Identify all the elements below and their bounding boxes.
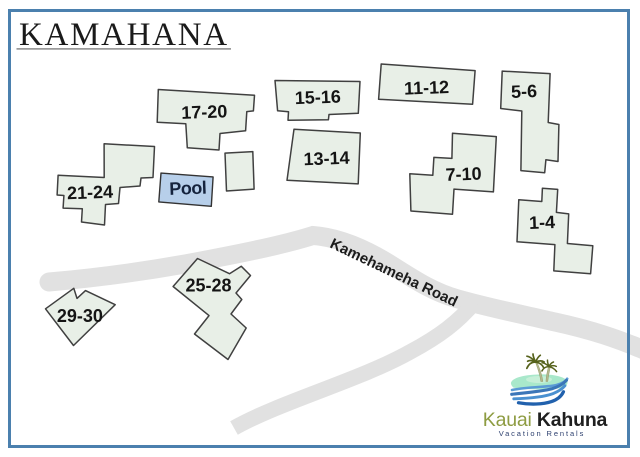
svg-text:13-14: 13-14 [303, 148, 350, 170]
svg-text:Vacation Rentals: Vacation Rentals [499, 429, 586, 438]
svg-text:1-4: 1-4 [529, 212, 556, 233]
svg-text:25-28: 25-28 [185, 276, 231, 296]
svg-text:Kauai Kahuna: Kauai Kahuna [483, 409, 608, 431]
svg-text:15-16: 15-16 [294, 87, 341, 109]
svg-text:KAMAHANA: KAMAHANA [19, 17, 229, 53]
svg-text:Pool: Pool [169, 178, 207, 199]
svg-text:17-20: 17-20 [181, 101, 228, 123]
svg-text:21-24: 21-24 [67, 182, 114, 204]
svg-text:11-12: 11-12 [404, 77, 450, 99]
svg-text:29-30: 29-30 [57, 306, 103, 326]
svg-text:7-10: 7-10 [445, 164, 482, 185]
svg-text:5-6: 5-6 [511, 81, 538, 102]
